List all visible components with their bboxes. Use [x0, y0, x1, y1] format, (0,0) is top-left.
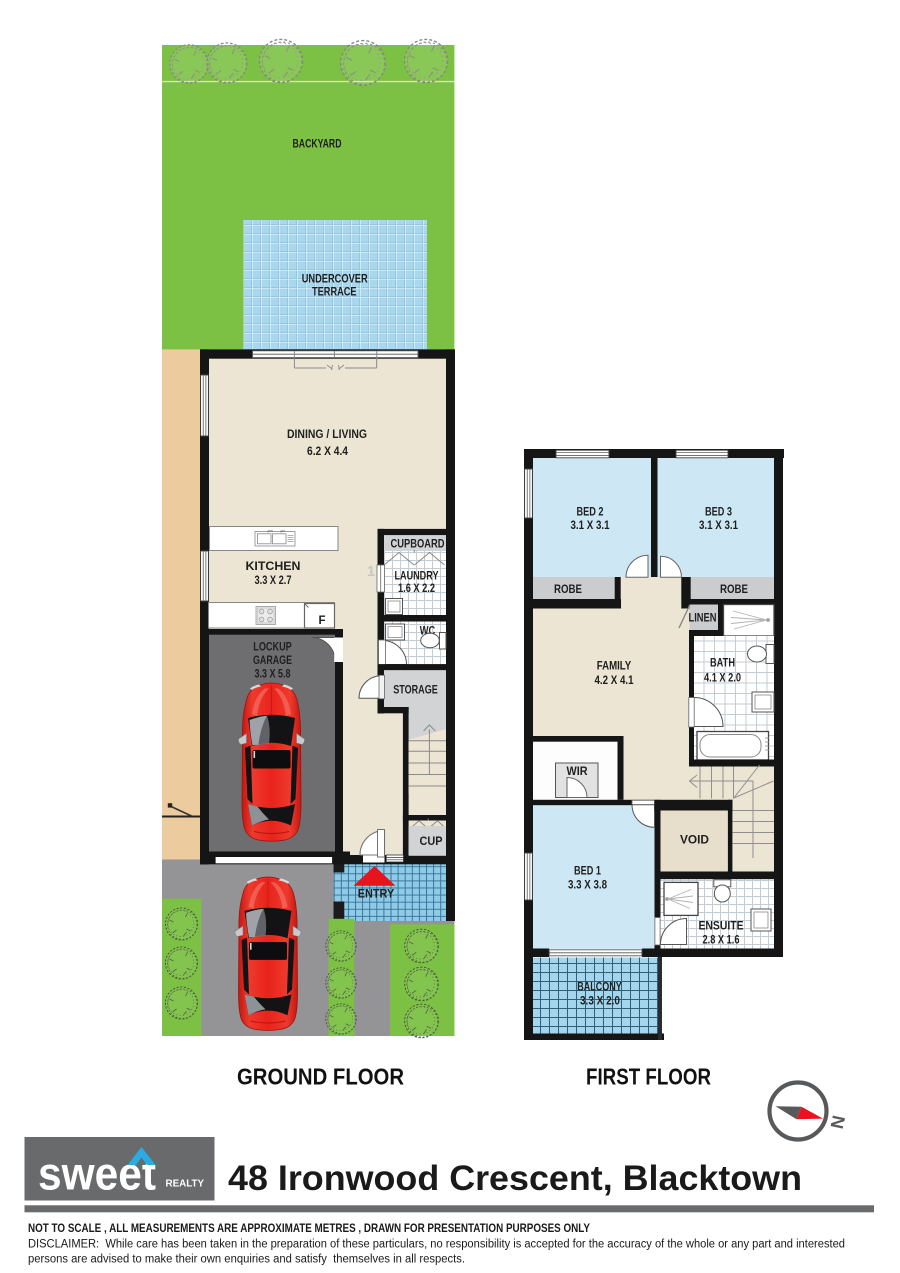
- svg-text:3.3 X 3.8: 3.3 X 3.8: [568, 878, 607, 892]
- svg-text:DINING / LIVING: DINING / LIVING: [287, 427, 367, 441]
- svg-text:3.3 X 2.7: 3.3 X 2.7: [255, 573, 292, 587]
- svg-text:ROBE: ROBE: [554, 584, 582, 596]
- svg-text:LOCKUP: LOCKUP: [253, 640, 292, 654]
- svg-text:STORAGE: STORAGE: [393, 685, 438, 697]
- svg-text:4.2 X 4.1: 4.2 X 4.1: [595, 673, 634, 687]
- svg-text:FAMILY: FAMILY: [597, 659, 632, 673]
- svg-text:DISCLAIMER: While care has be: DISCLAIMER: While care has been taken in…: [28, 1239, 845, 1251]
- svg-text:BATH: BATH: [710, 656, 735, 670]
- svg-text:GARAGE: GARAGE: [253, 653, 292, 667]
- svg-text:BED 3: BED 3: [705, 505, 732, 519]
- svg-text:persons are advised to make th: persons are advised to make their own en…: [28, 1254, 465, 1266]
- svg-text:2.8 X 1.6: 2.8 X 1.6: [703, 933, 740, 947]
- svg-text:TERRACE: TERRACE: [312, 285, 357, 299]
- svg-text:KITCHEN: KITCHEN: [246, 559, 301, 573]
- svg-text:GROUND FLOOR: GROUND FLOOR: [237, 1064, 404, 1090]
- svg-text:WIR: WIR: [567, 766, 589, 778]
- svg-text:1: 1: [367, 563, 375, 580]
- svg-text:BED 2: BED 2: [577, 505, 604, 519]
- svg-text:ROBE: ROBE: [720, 584, 748, 596]
- svg-text:48 Ironwood Crescent, Blacktow: 48 Ironwood Crescent, Blacktown: [228, 1159, 802, 1198]
- svg-text:3.1 X 3.1: 3.1 X 3.1: [571, 518, 610, 532]
- svg-text:3.1 X 3.1: 3.1 X 3.1: [699, 518, 738, 532]
- svg-text:VOID: VOID: [680, 833, 709, 847]
- svg-text:CUPBOARD: CUPBOARD: [391, 539, 445, 551]
- svg-text:BALCONY: BALCONY: [577, 980, 622, 994]
- svg-text:LAUNDRY: LAUNDRY: [395, 571, 439, 583]
- svg-text:ENTRY: ENTRY: [358, 887, 395, 901]
- svg-text:3.3 X 5.8: 3.3 X 5.8: [255, 667, 291, 681]
- svg-text:NOT TO SCALE , ALL MEASUREMENT: NOT TO SCALE , ALL MEASUREMENTS ARE APPR…: [28, 1223, 590, 1235]
- svg-text:1.6 X 2.2: 1.6 X 2.2: [398, 583, 435, 595]
- svg-text:FIRST FLOOR: FIRST FLOOR: [586, 1064, 711, 1090]
- svg-text:3.3 X 2.0: 3.3 X 2.0: [580, 994, 620, 1008]
- svg-text:6.2 X 4.4: 6.2 X 4.4: [307, 444, 348, 458]
- svg-text:CUP: CUP: [420, 836, 443, 848]
- svg-text:BACKYARD: BACKYARD: [293, 137, 342, 151]
- svg-text:LINEN: LINEN: [689, 613, 717, 625]
- svg-text:F: F: [318, 615, 325, 627]
- svg-text:4.1 X 2.0: 4.1 X 2.0: [704, 671, 741, 685]
- svg-text:UNDERCOVER: UNDERCOVER: [302, 272, 368, 286]
- svg-text:ENSUITE: ENSUITE: [699, 919, 744, 933]
- svg-text:REALTY: REALTY: [166, 1179, 205, 1190]
- svg-text:BED 1: BED 1: [574, 864, 601, 878]
